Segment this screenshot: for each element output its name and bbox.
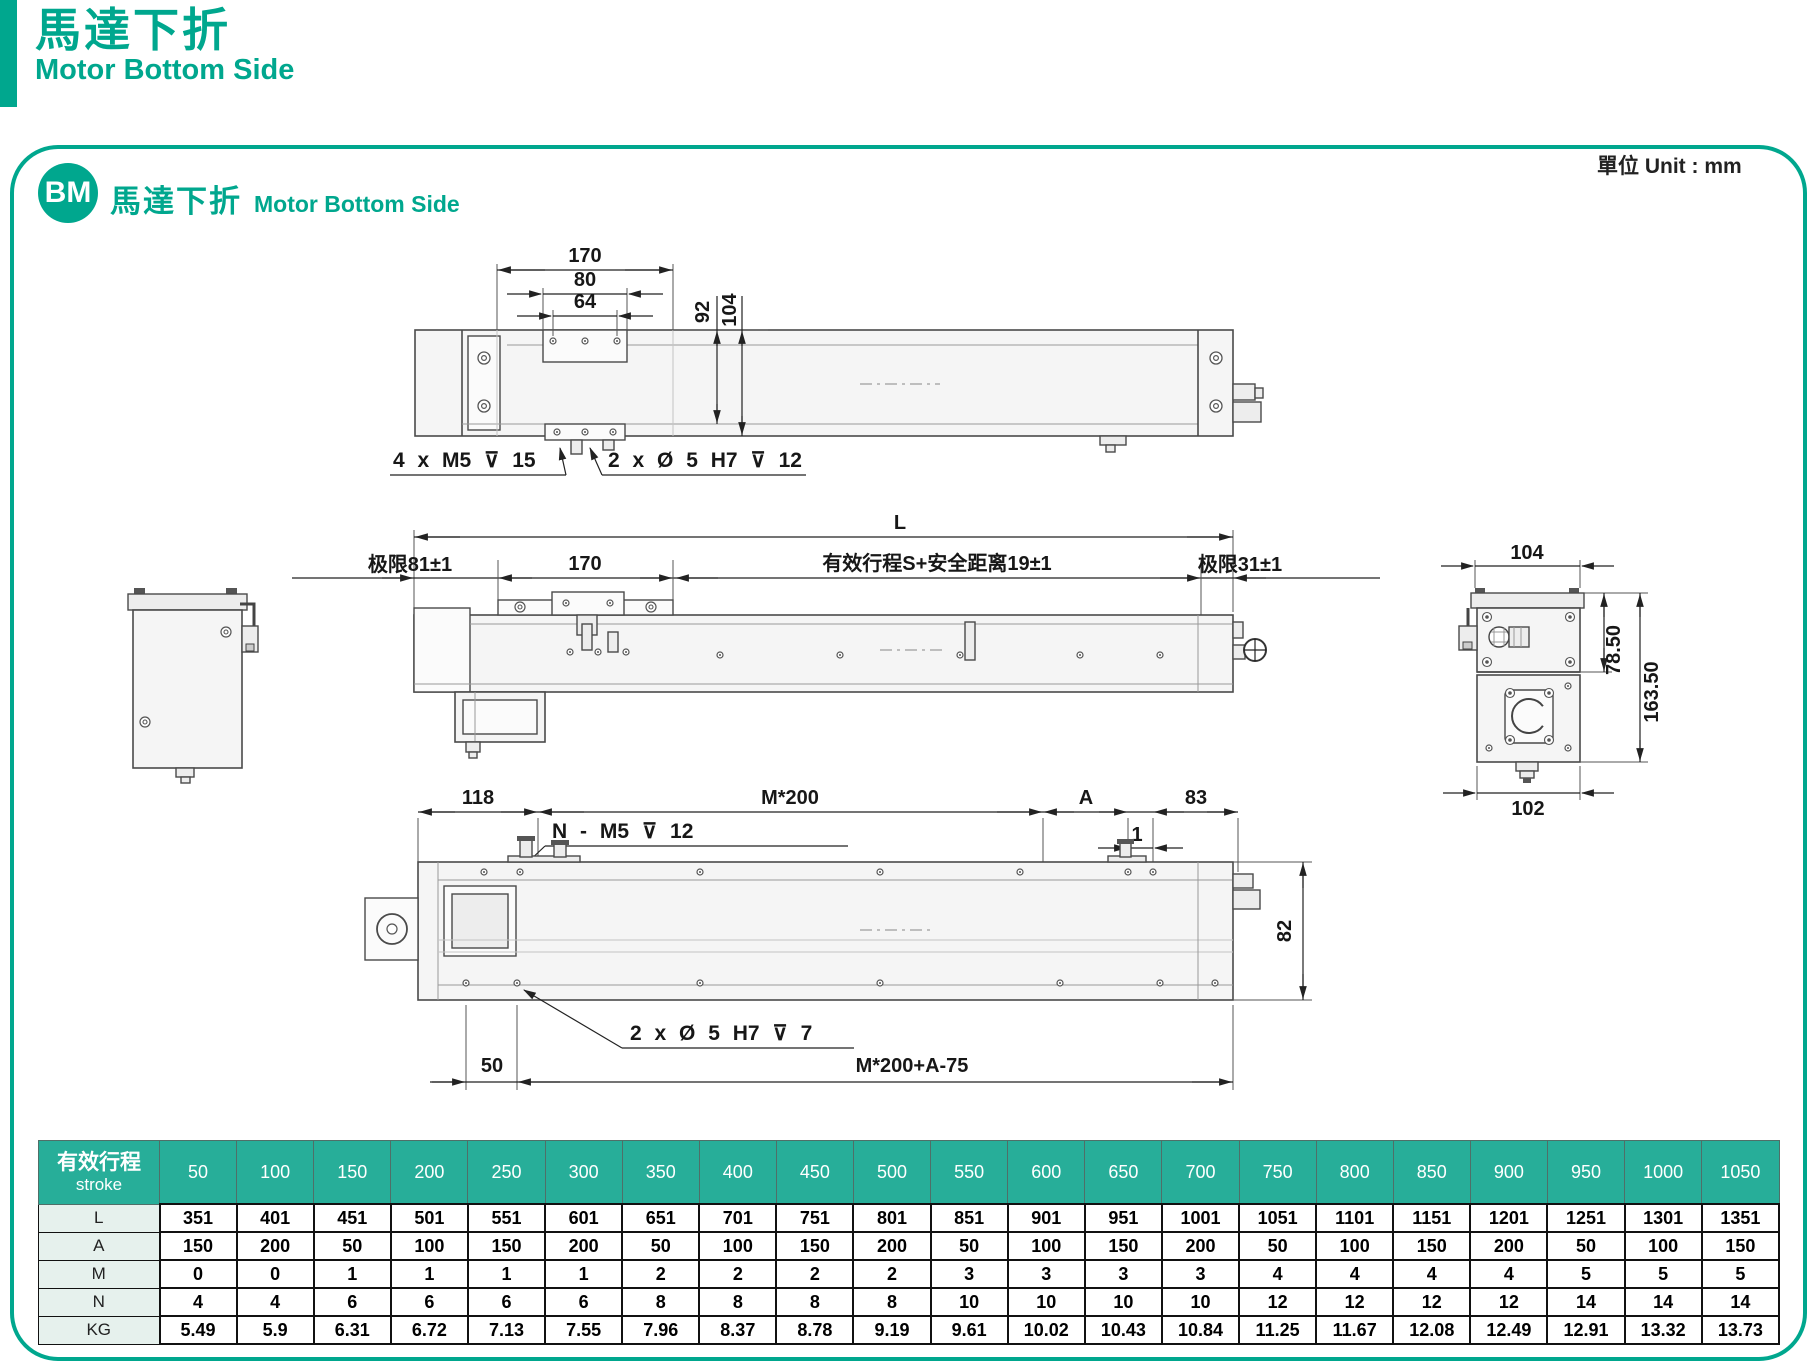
spec-cell: 7.96 (622, 1316, 699, 1344)
dim-104-top: 104 (719, 292, 741, 326)
table-row-N: N44666688881010101012121212141414 (39, 1288, 1780, 1316)
spec-cell: 100 (1625, 1232, 1702, 1260)
spec-cell: 551 (468, 1204, 545, 1232)
spec-cell: 10.43 (1085, 1316, 1162, 1344)
spec-cell: 0 (237, 1260, 314, 1288)
spec-cell: 2 (622, 1260, 699, 1288)
row-label: A (39, 1232, 160, 1260)
dim-83: 83 (1185, 787, 1207, 809)
spec-cell: 8 (853, 1288, 930, 1316)
spec-cell: 2 (699, 1260, 776, 1288)
spec-cell: 12 (1470, 1288, 1547, 1316)
stroke-col-header: 50 (160, 1141, 237, 1205)
spec-cell: 150 (468, 1232, 545, 1260)
spec-cell: 6 (545, 1288, 622, 1316)
spec-cell: 1001 (1162, 1204, 1239, 1232)
spec-cell: 4 (237, 1288, 314, 1316)
spec-cell: 501 (391, 1204, 468, 1232)
spec-cell: 4 (1470, 1260, 1547, 1288)
stroke-col-header: 1050 (1702, 1141, 1779, 1205)
spec-cell: 4 (160, 1288, 237, 1316)
row-label: N (39, 1288, 160, 1316)
spec-cell: 100 (699, 1232, 776, 1260)
spec-cell: 751 (776, 1204, 853, 1232)
stroke-col-header: 400 (699, 1141, 776, 1205)
spec-cell: 150 (1702, 1232, 1779, 1260)
spec-cell: 50 (622, 1232, 699, 1260)
spec-cell: 13.32 (1625, 1316, 1702, 1344)
spec-cell: 11.25 (1239, 1316, 1316, 1344)
spec-cell: 7.13 (468, 1316, 545, 1344)
spec-cell: 4 (1393, 1260, 1470, 1288)
dim-limit-left: 极限81±1 (368, 552, 452, 576)
spec-cell: 150 (1085, 1232, 1162, 1260)
spec-cell: 8 (622, 1288, 699, 1316)
stroke-col-header: 950 (1547, 1141, 1624, 1205)
dim-stroke-label: 有效行程S+安全距离19±1 (822, 551, 1051, 575)
spec-cell: 3 (931, 1260, 1008, 1288)
stroke-col-header: 800 (1316, 1141, 1393, 1205)
stroke-col-header: 700 (1162, 1141, 1239, 1205)
spec-cell: 150 (1393, 1232, 1470, 1260)
dim-m200a: M*200+A-75 (856, 1055, 969, 1077)
spec-cell: 50 (1239, 1232, 1316, 1260)
stroke-col-header: 650 (1085, 1141, 1162, 1205)
callout-2xdowel-top: 2 x Ø 5 H7 ⊽ 12 (608, 449, 802, 472)
spec-cell: 9.61 (931, 1316, 1008, 1344)
spec-cell: 10.02 (1008, 1316, 1085, 1344)
spec-cell: 8.78 (776, 1316, 853, 1344)
dim-m200: M*200 (761, 787, 819, 809)
spec-cell: 3 (1162, 1260, 1239, 1288)
table-row-L: L351401451501551601651701751801851901951… (39, 1204, 1780, 1232)
stroke-col-header: 600 (1008, 1141, 1085, 1205)
callout-2xdowel-bottom: 2 x Ø 5 H7 ⊽ 7 (630, 1022, 812, 1045)
spec-cell: 10.84 (1162, 1316, 1239, 1344)
spec-cell: 12.91 (1547, 1316, 1624, 1344)
stroke-col-header: 500 (853, 1141, 930, 1205)
spec-cell: 4 (1239, 1260, 1316, 1288)
spec-cell: 701 (699, 1204, 776, 1232)
spec-cell: 5 (1702, 1260, 1779, 1288)
end-view-drawing: 104 78.50 163.50 (1441, 542, 1663, 820)
spec-cell: 951 (1085, 1204, 1162, 1232)
dim-92: 92 (692, 301, 714, 323)
dim-104-end: 104 (1510, 542, 1544, 564)
stroke-col-header: 850 (1393, 1141, 1470, 1205)
stroke-col-header: 900 (1470, 1141, 1547, 1205)
dim-82: 82 (1274, 920, 1296, 942)
spec-cell: 6 (391, 1288, 468, 1316)
spec-cell: 6 (314, 1288, 391, 1316)
top-view-drawing: 170 80 64 92 104 4 x M5 ⊽ 15 2 x Ø 5 H7 … (390, 245, 1263, 475)
dim-163-50: 163.50 (1641, 661, 1663, 722)
stroke-header-row: 有效行程stroke501001502002503003504004505005… (39, 1141, 1780, 1205)
spec-cell: 5.9 (237, 1316, 314, 1344)
spec-cell: 351 (160, 1204, 237, 1232)
spec-cell: 1151 (1393, 1204, 1470, 1232)
spec-cell: 100 (1316, 1232, 1393, 1260)
spec-cell: 12.49 (1470, 1316, 1547, 1344)
spec-cell: 9.19 (853, 1316, 930, 1344)
table-header-stroke: 有效行程stroke (39, 1141, 160, 1205)
spec-cell: 1301 (1625, 1204, 1702, 1232)
spec-cell: 1201 (1470, 1204, 1547, 1232)
spec-cell: 14 (1702, 1288, 1779, 1316)
stroke-col-header: 750 (1239, 1141, 1316, 1205)
spec-cell: 150 (776, 1232, 853, 1260)
spec-cell: 12.08 (1393, 1316, 1470, 1344)
spec-cell: 6.31 (314, 1316, 391, 1344)
table-row-KG: KG5.495.96.316.727.137.557.968.378.789.1… (39, 1316, 1780, 1344)
dim-A: A (1079, 787, 1093, 809)
spec-cell: 651 (622, 1204, 699, 1232)
spec-cell: 12 (1393, 1288, 1470, 1316)
bottom-view-drawing: 118 M*200 A 83 1 N - M5 ⊽ 12 (365, 787, 1312, 1090)
stroke-col-header: 1000 (1625, 1141, 1702, 1205)
spec-cell: 200 (1470, 1232, 1547, 1260)
row-label: M (39, 1260, 160, 1288)
spec-cell: 1351 (1702, 1204, 1779, 1232)
spec-cell: 8 (776, 1288, 853, 1316)
stroke-col-header: 250 (468, 1141, 545, 1205)
spec-cell: 8.37 (699, 1316, 776, 1344)
dim-102: 102 (1511, 798, 1544, 820)
dim-80: 80 (574, 269, 596, 291)
table-row-M: M001111222233334444555 (39, 1260, 1780, 1288)
dim-78-50: 78.50 (1603, 625, 1625, 675)
spec-cell: 10 (1162, 1288, 1239, 1316)
spec-cell: 5.49 (160, 1316, 237, 1344)
dim-L: L (894, 512, 906, 534)
spec-cell: 401 (237, 1204, 314, 1232)
row-label: L (39, 1204, 160, 1232)
callout-4xm5: 4 x M5 ⊽ 15 (393, 449, 536, 472)
spec-table-wrap: 有效行程stroke501001502002503003504004505005… (38, 1140, 1780, 1345)
spec-cell: 6.72 (391, 1316, 468, 1344)
spec-table: 有效行程stroke501001502002503003504004505005… (38, 1140, 1780, 1345)
spec-cell: 5 (1547, 1260, 1624, 1288)
spec-cell: 50 (1547, 1232, 1624, 1260)
table-row-A: A150200501001502005010015020050100150200… (39, 1232, 1780, 1260)
dim-64: 64 (574, 291, 597, 313)
spec-cell: 200 (237, 1232, 314, 1260)
row-label: KG (39, 1316, 160, 1344)
spec-cell: 12 (1316, 1288, 1393, 1316)
spec-cell: 100 (1008, 1232, 1085, 1260)
spec-cell: 10 (1008, 1288, 1085, 1316)
dim-170-front: 170 (568, 553, 601, 575)
dim-limit-right: 极限31±1 (1198, 552, 1282, 576)
spec-cell: 14 (1625, 1288, 1702, 1316)
spec-cell: 0 (160, 1260, 237, 1288)
dim-50: 50 (481, 1055, 503, 1077)
spec-cell: 601 (545, 1204, 622, 1232)
spec-cell: 100 (391, 1232, 468, 1260)
front-view-drawing: L 极限81±1 170 有效行程S+安全距离19±1 极限31±1 (128, 512, 1380, 783)
spec-cell: 1 (545, 1260, 622, 1288)
spec-cell: 200 (853, 1232, 930, 1260)
spec-cell: 1051 (1239, 1204, 1316, 1232)
spec-cell: 150 (160, 1232, 237, 1260)
spec-cell: 11.67 (1316, 1316, 1393, 1344)
spec-cell: 200 (1162, 1232, 1239, 1260)
spec-cell: 1 (391, 1260, 468, 1288)
stroke-col-header: 350 (622, 1141, 699, 1205)
dim-170-top: 170 (568, 245, 601, 267)
dim-118: 118 (462, 787, 494, 809)
stroke-col-header: 450 (776, 1141, 853, 1205)
stroke-col-header: 200 (391, 1141, 468, 1205)
spec-cell: 451 (314, 1204, 391, 1232)
spec-cell: 801 (853, 1204, 930, 1232)
spec-cell: 10 (1085, 1288, 1162, 1316)
spec-cell: 7.55 (545, 1316, 622, 1344)
spec-cell: 4 (1316, 1260, 1393, 1288)
stroke-col-header: 300 (545, 1141, 622, 1205)
stroke-col-header: 550 (931, 1141, 1008, 1205)
spec-cell: 1251 (1547, 1204, 1624, 1232)
spec-cell: 200 (545, 1232, 622, 1260)
spec-cell: 3 (1085, 1260, 1162, 1288)
spec-cell: 1 (468, 1260, 545, 1288)
spec-cell: 3 (1008, 1260, 1085, 1288)
spec-cell: 6 (468, 1288, 545, 1316)
spec-cell: 12 (1239, 1288, 1316, 1316)
spec-cell: 2 (776, 1260, 853, 1288)
spec-cell: 13.73 (1702, 1316, 1779, 1344)
stroke-col-header: 100 (237, 1141, 314, 1205)
spec-cell: 851 (931, 1204, 1008, 1232)
spec-cell: 50 (314, 1232, 391, 1260)
callout-n-m5: N - M5 ⊽ 12 (552, 820, 693, 843)
stroke-col-header: 150 (314, 1141, 391, 1205)
spec-cell: 5 (1625, 1260, 1702, 1288)
spec-cell: 14 (1547, 1288, 1624, 1316)
spec-cell: 50 (931, 1232, 1008, 1260)
spec-cell: 901 (1008, 1204, 1085, 1232)
spec-cell: 1101 (1316, 1204, 1393, 1232)
spec-cell: 8 (699, 1288, 776, 1316)
spec-cell: 10 (931, 1288, 1008, 1316)
spec-cell: 1 (314, 1260, 391, 1288)
spec-cell: 2 (853, 1260, 930, 1288)
